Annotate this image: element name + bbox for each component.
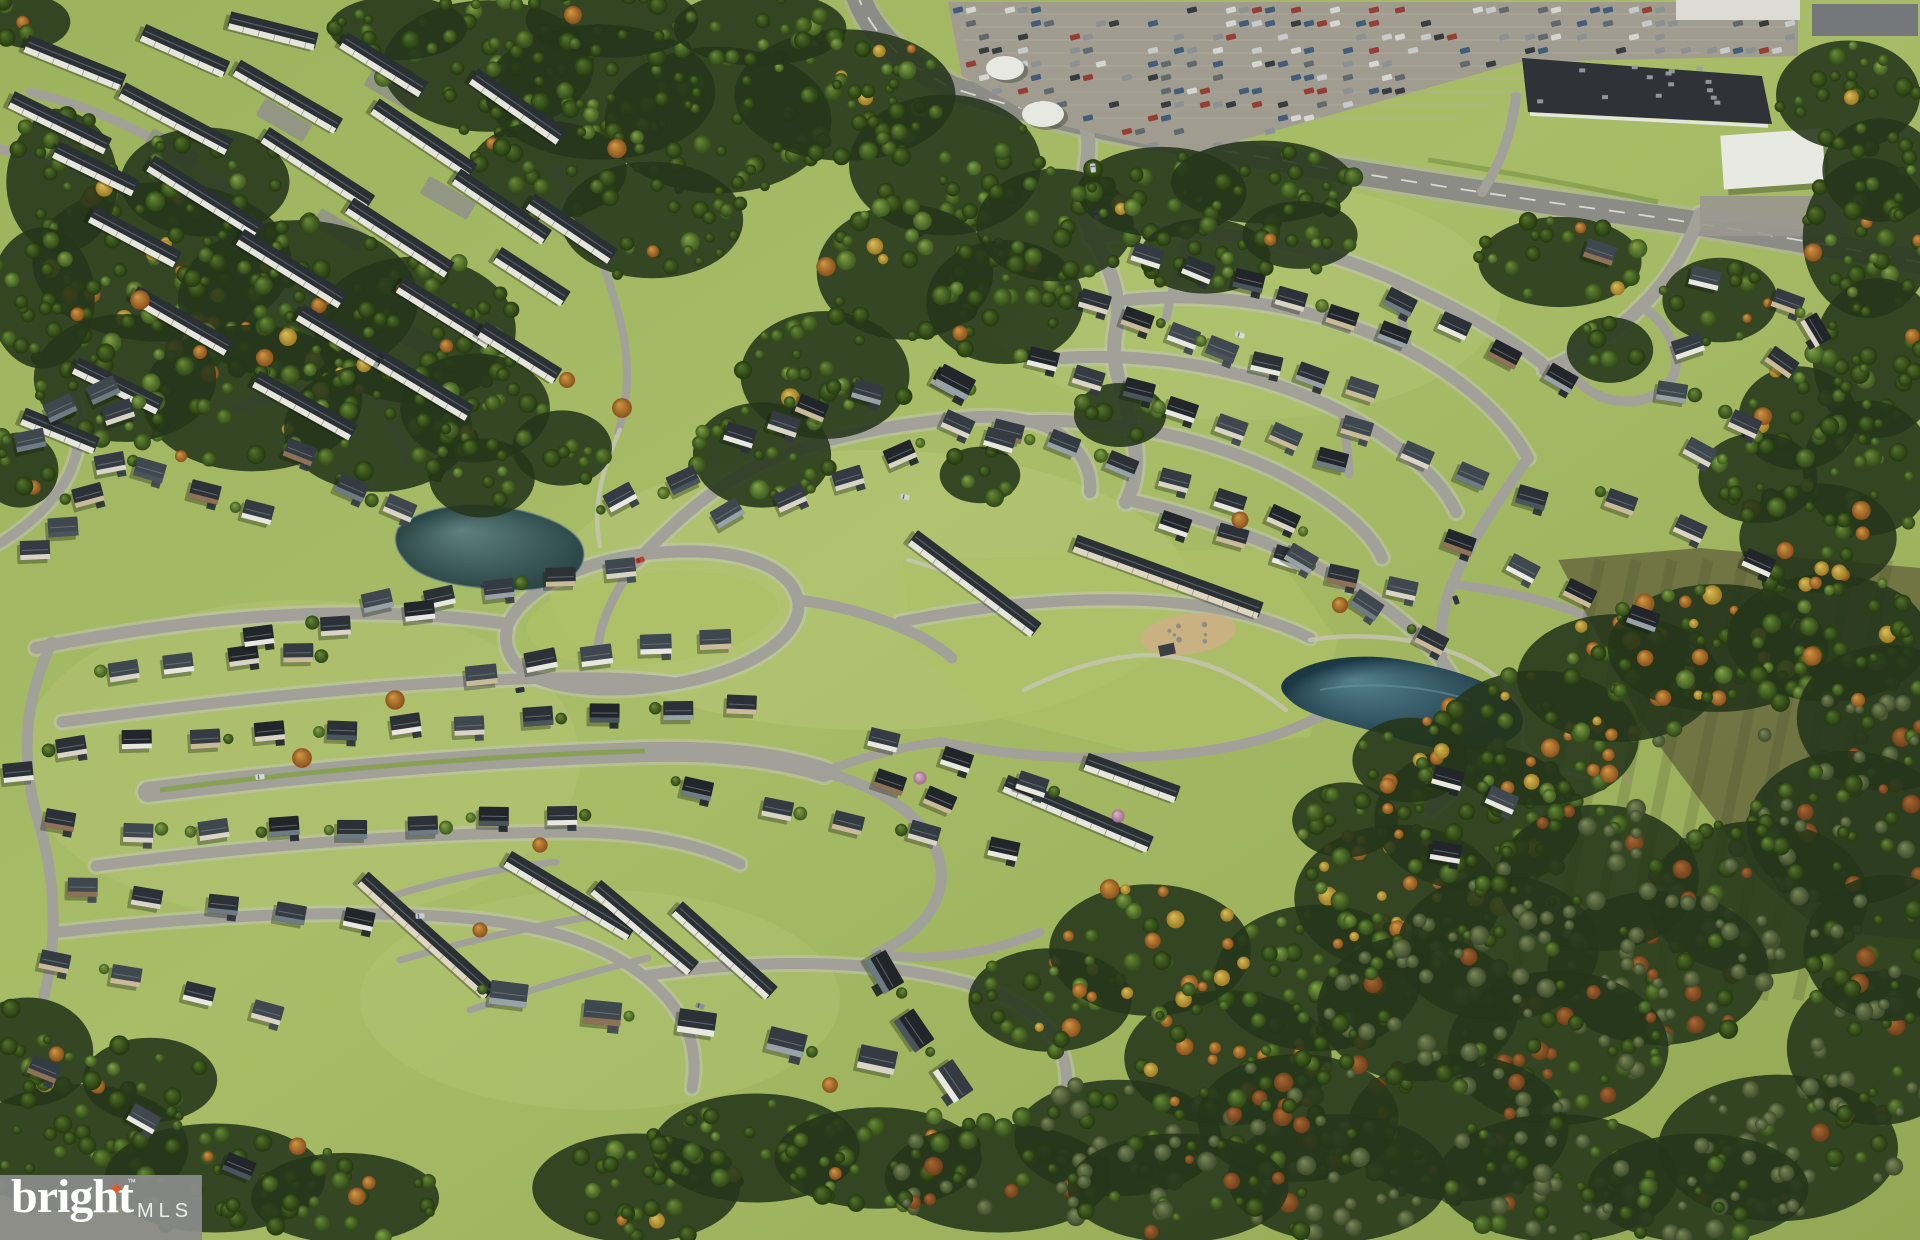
forest-tree bbox=[1084, 955, 1095, 966]
forest-tree bbox=[1890, 980, 1900, 990]
autumn-tree bbox=[1231, 511, 1248, 528]
forest-tree bbox=[650, 1136, 669, 1155]
forest-tree bbox=[1170, 1096, 1180, 1106]
car-windshield bbox=[1095, 213, 1099, 214]
forest-tree bbox=[1875, 820, 1888, 833]
forest-tree bbox=[1580, 1187, 1595, 1202]
forest-tree bbox=[740, 406, 750, 416]
forest-tree bbox=[82, 1071, 101, 1090]
forest-tree bbox=[1004, 1184, 1018, 1198]
forest-tree bbox=[1575, 222, 1586, 233]
forest-tree bbox=[100, 276, 110, 286]
forest-tree bbox=[1291, 1221, 1310, 1240]
forest-tree bbox=[785, 1144, 800, 1159]
forest-tree bbox=[1169, 1136, 1181, 1148]
forest-tree bbox=[1600, 765, 1618, 783]
forest-tree bbox=[1694, 584, 1706, 596]
forest-tree bbox=[1868, 599, 1882, 613]
forest-tree bbox=[1294, 1050, 1312, 1068]
flowering-tree bbox=[914, 772, 927, 785]
forest-tree bbox=[331, 1171, 350, 1190]
forest-tree bbox=[437, 446, 448, 457]
forest-tree bbox=[1358, 740, 1369, 751]
forest-tree bbox=[583, 446, 593, 456]
forest-tree bbox=[1207, 1054, 1217, 1064]
forest-tree bbox=[1858, 1092, 1870, 1104]
forest-tree bbox=[1042, 990, 1056, 1004]
forest-tree bbox=[1573, 722, 1590, 739]
forest-tree bbox=[1053, 1031, 1070, 1048]
forest-tree bbox=[1123, 952, 1143, 972]
forest-tree bbox=[1187, 240, 1202, 255]
forest-tree bbox=[1622, 268, 1640, 286]
forest-tree bbox=[453, 467, 463, 477]
forest-tree bbox=[890, 123, 906, 139]
forest-tree bbox=[1755, 824, 1768, 837]
yard-tree bbox=[324, 825, 335, 836]
forest-tree bbox=[1287, 165, 1303, 181]
forest-tree bbox=[175, 450, 187, 462]
forest-tree bbox=[818, 360, 835, 377]
forest-tree bbox=[1583, 1205, 1592, 1214]
forest-tree bbox=[902, 197, 920, 215]
forest-tree bbox=[594, 447, 612, 465]
forest-tree bbox=[1458, 803, 1475, 820]
forest-tree bbox=[780, 24, 790, 34]
forest-tree bbox=[198, 1132, 212, 1146]
forest-tree bbox=[1503, 259, 1520, 276]
autumn-tree bbox=[952, 325, 967, 340]
forest-tree bbox=[1850, 144, 1865, 159]
forest-tree bbox=[1713, 1202, 1724, 1213]
forest-tree bbox=[898, 61, 916, 79]
forest-tree bbox=[1805, 955, 1823, 973]
forest-tree bbox=[1783, 485, 1799, 501]
forest-tree bbox=[113, 263, 127, 277]
forest-tree bbox=[1046, 166, 1056, 176]
forest-tree bbox=[1832, 136, 1846, 150]
forest-tree bbox=[1600, 1074, 1610, 1084]
forest-tree bbox=[1261, 945, 1277, 961]
forest-tree bbox=[1172, 1213, 1181, 1222]
forest-tree bbox=[1887, 131, 1899, 143]
forest-tree bbox=[254, 276, 273, 295]
forest-tree bbox=[1324, 787, 1340, 803]
garage-wing bbox=[607, 1025, 619, 1034]
forest-tree bbox=[1022, 1149, 1036, 1163]
forest-tree bbox=[1589, 1146, 1601, 1158]
forest-tree bbox=[1209, 1042, 1221, 1054]
forest-tree bbox=[911, 121, 921, 131]
forest-tree bbox=[1870, 1135, 1888, 1153]
forest-tree bbox=[1358, 919, 1374, 935]
forest-tree bbox=[1584, 283, 1603, 302]
forest-tree bbox=[1810, 1037, 1824, 1051]
forest-tree bbox=[1321, 237, 1333, 249]
forest-tree bbox=[1630, 810, 1643, 823]
forest-tree bbox=[1811, 1123, 1829, 1141]
forest-tree bbox=[760, 1148, 772, 1160]
forest-tree bbox=[770, 329, 784, 343]
forest-tree bbox=[309, 1196, 321, 1208]
forest-tree bbox=[1382, 803, 1393, 814]
forest-tree bbox=[888, 102, 906, 120]
forest-tree bbox=[1659, 286, 1669, 296]
forest-tree bbox=[1572, 895, 1582, 905]
forest-tree bbox=[1345, 1198, 1357, 1210]
forest-tree bbox=[459, 124, 470, 135]
forest-tree bbox=[1633, 963, 1645, 975]
forest-tree bbox=[1339, 1054, 1354, 1069]
house bbox=[723, 694, 757, 718]
forest-tree bbox=[910, 1148, 921, 1159]
forest-tree bbox=[1715, 919, 1724, 928]
forest-tree bbox=[1536, 978, 1555, 997]
forest-tree bbox=[1545, 942, 1560, 957]
forest-tree bbox=[1731, 964, 1747, 980]
forest-tree bbox=[728, 230, 739, 241]
forest-tree bbox=[938, 151, 952, 165]
house bbox=[0, 761, 34, 787]
forest-tree bbox=[1077, 1203, 1094, 1220]
forest-tree bbox=[1876, 228, 1896, 248]
autumn-tree bbox=[1802, 646, 1821, 665]
forest-tree bbox=[1349, 1029, 1358, 1038]
forest-tree bbox=[929, 105, 943, 119]
forest-tree bbox=[462, 439, 479, 456]
garage-wing bbox=[661, 654, 671, 661]
forest-tree bbox=[1794, 96, 1804, 106]
forest-tree bbox=[847, 100, 857, 110]
forest-tree bbox=[813, 1185, 833, 1205]
forest-tree bbox=[1638, 1000, 1651, 1013]
forest-tree bbox=[317, 448, 335, 466]
forest-tree bbox=[1250, 1119, 1266, 1135]
forest-tree bbox=[1678, 1201, 1687, 1210]
forest-tree bbox=[1603, 825, 1615, 837]
autumn-tree bbox=[292, 748, 312, 768]
forest-tree bbox=[1712, 639, 1722, 649]
forest-tree bbox=[200, 276, 210, 286]
forest-tree bbox=[1064, 284, 1074, 294]
forest-tree bbox=[1694, 1137, 1710, 1153]
forest-tree bbox=[617, 29, 628, 40]
forest-tree bbox=[590, 44, 602, 56]
forest-tree bbox=[1650, 1030, 1661, 1041]
forest-tree bbox=[1687, 1016, 1705, 1034]
forest-tree bbox=[1490, 875, 1509, 894]
forest-tree bbox=[1742, 314, 1751, 323]
forest-tree bbox=[842, 235, 854, 247]
forest-tree bbox=[493, 138, 512, 157]
forest-tree bbox=[1047, 1163, 1057, 1173]
forest-tree bbox=[226, 1198, 241, 1213]
forest-tree bbox=[1898, 373, 1912, 387]
forest-tree bbox=[789, 1172, 798, 1181]
forest-tree bbox=[767, 1099, 777, 1109]
forest-tree bbox=[792, 349, 802, 359]
forest-tree bbox=[557, 446, 570, 459]
forest-tree bbox=[373, 312, 387, 326]
forest-tree bbox=[1087, 991, 1097, 1001]
forest-tree bbox=[1900, 626, 1912, 638]
forest-tree bbox=[1519, 212, 1538, 231]
forest-tree bbox=[1144, 1063, 1158, 1077]
forest-tree bbox=[1154, 276, 1166, 288]
forest-tree bbox=[1199, 1087, 1210, 1098]
forest-tree bbox=[1420, 829, 1431, 840]
forest-tree bbox=[1480, 703, 1495, 718]
forest-tree bbox=[1729, 274, 1742, 287]
forest-tree bbox=[1639, 882, 1657, 900]
forest-tree bbox=[1316, 1070, 1331, 1085]
forest-tree bbox=[1700, 893, 1718, 911]
forest-tree bbox=[1820, 417, 1839, 436]
forest-tree bbox=[1522, 288, 1534, 300]
forest-tree bbox=[1894, 595, 1912, 613]
forest-tree bbox=[1897, 840, 1916, 859]
forest-tree bbox=[78, 1136, 96, 1154]
house bbox=[577, 643, 614, 671]
car-windshield bbox=[903, 495, 904, 499]
forest-tree bbox=[1567, 652, 1579, 664]
forest-tree bbox=[1346, 1128, 1357, 1139]
forest-tree bbox=[1525, 1220, 1541, 1236]
forest-tree bbox=[829, 1167, 842, 1180]
forest-tree bbox=[1796, 448, 1815, 467]
forest-tree bbox=[1794, 820, 1807, 833]
forest-tree bbox=[443, 30, 457, 44]
forest-tree bbox=[1518, 911, 1537, 930]
forest-tree bbox=[1006, 254, 1026, 274]
forest-tree bbox=[1385, 1067, 1404, 1086]
house-facade bbox=[68, 891, 98, 896]
forest-tree bbox=[1666, 720, 1682, 736]
forest-tree bbox=[25, 242, 41, 258]
garage-wing bbox=[475, 735, 484, 741]
forest-tree bbox=[895, 387, 912, 404]
autumn-tree bbox=[472, 922, 487, 937]
forest-tree bbox=[1469, 925, 1489, 945]
forest-tree bbox=[760, 331, 769, 340]
forest-tree bbox=[642, 1165, 656, 1179]
forest-tree bbox=[1607, 1046, 1618, 1057]
forest-tree bbox=[227, 160, 237, 170]
forest-tree bbox=[135, 204, 146, 215]
forest-tree bbox=[53, 1145, 67, 1159]
forest-tree bbox=[164, 1138, 181, 1155]
forest-tree bbox=[1035, 1023, 1044, 1032]
forest-tree bbox=[708, 49, 724, 65]
forest-tree bbox=[1873, 915, 1883, 925]
forest-tree bbox=[1600, 1087, 1616, 1103]
forest-tree bbox=[1383, 731, 1394, 742]
forest-tree bbox=[1601, 316, 1617, 332]
forest-tree bbox=[1854, 180, 1866, 192]
forest-tree bbox=[1668, 295, 1685, 312]
forest-tree bbox=[1185, 1155, 1194, 1164]
forest-tree bbox=[1333, 1207, 1351, 1225]
forest-tree bbox=[1821, 694, 1834, 707]
forest-tree bbox=[1831, 564, 1847, 580]
forest-tree bbox=[300, 214, 320, 234]
forest-tree bbox=[788, 452, 797, 461]
forest-tree bbox=[1429, 725, 1439, 735]
forest-tree bbox=[958, 1130, 977, 1149]
forest-tree bbox=[665, 1198, 684, 1217]
garage-wing bbox=[609, 723, 618, 729]
forest-tree bbox=[1322, 181, 1331, 190]
forest-tree bbox=[1587, 764, 1600, 777]
forest-tree bbox=[981, 309, 999, 327]
forest-tree bbox=[401, 30, 420, 49]
forest-tree bbox=[1574, 761, 1586, 773]
forest-tree bbox=[1648, 858, 1664, 874]
rooftop-hvac-unit bbox=[1668, 82, 1674, 86]
house bbox=[64, 877, 97, 902]
forest-tree bbox=[384, 407, 396, 419]
forest-tree bbox=[1154, 1144, 1171, 1161]
forest-tree bbox=[1548, 819, 1562, 833]
forest-tree bbox=[1358, 1023, 1375, 1040]
car bbox=[1090, 163, 1096, 172]
forest-tree bbox=[364, 15, 373, 24]
forest-tree bbox=[691, 87, 701, 97]
forest-tree bbox=[493, 287, 507, 301]
forest-tree bbox=[106, 1062, 120, 1076]
forest-tree bbox=[733, 197, 747, 211]
forest-tree bbox=[1001, 273, 1010, 282]
rooftop-hvac-unit bbox=[1537, 99, 1543, 103]
forest-tree bbox=[1750, 800, 1762, 812]
forest-tree bbox=[1542, 1069, 1552, 1079]
forest-tree bbox=[1067, 1173, 1079, 1185]
forest-tree bbox=[1871, 702, 1887, 718]
forest-tree bbox=[1563, 805, 1575, 817]
forest-tree bbox=[1541, 738, 1560, 757]
forest-tree bbox=[1227, 1089, 1247, 1109]
forest-tree bbox=[1501, 846, 1513, 858]
forest-tree bbox=[1333, 938, 1343, 948]
forest-tree bbox=[1756, 915, 1767, 926]
forest-tree bbox=[340, 439, 350, 449]
forest-tree bbox=[183, 269, 201, 287]
forest-tree bbox=[1840, 547, 1854, 561]
forest-tree bbox=[1542, 789, 1556, 803]
forest-tree bbox=[1880, 838, 1894, 852]
forest-tree bbox=[1305, 1203, 1323, 1221]
forest-tree bbox=[1124, 199, 1141, 216]
forest-tree bbox=[1808, 793, 1819, 804]
forest-tree bbox=[1594, 219, 1611, 236]
forest-tree bbox=[1477, 1176, 1486, 1185]
forest-tree bbox=[1730, 827, 1743, 840]
forest-tree bbox=[1711, 690, 1727, 706]
car-body bbox=[415, 913, 424, 919]
forest-tree bbox=[1032, 156, 1046, 170]
forest-tree bbox=[961, 475, 975, 489]
forest-tree bbox=[518, 394, 537, 413]
water-tank bbox=[986, 56, 1024, 80]
forest-tree bbox=[1023, 209, 1041, 227]
forest-tree bbox=[1310, 262, 1322, 274]
forest-tree bbox=[1787, 864, 1805, 882]
forest-tree bbox=[372, 390, 381, 399]
forest-tree bbox=[946, 182, 960, 196]
house bbox=[44, 516, 79, 541]
playground-rock bbox=[1176, 624, 1181, 629]
garage-wing bbox=[87, 897, 96, 903]
forest-tree bbox=[43, 1035, 52, 1044]
forest-tree bbox=[253, 1133, 272, 1152]
forest-tree bbox=[1639, 1177, 1658, 1196]
forest-tree bbox=[833, 147, 851, 165]
forest-tree bbox=[1463, 930, 1472, 939]
forest-tree bbox=[1101, 1093, 1119, 1111]
forest-tree bbox=[358, 301, 376, 319]
forest-tree bbox=[1878, 999, 1889, 1010]
forest-tree bbox=[1512, 1054, 1525, 1067]
house-facade bbox=[479, 821, 509, 826]
forest-tree bbox=[1497, 712, 1513, 728]
forest-tree bbox=[22, 1080, 35, 1093]
forest-tree bbox=[1825, 234, 1837, 246]
forest-tree bbox=[492, 491, 508, 507]
forest-tree bbox=[1214, 970, 1230, 986]
forest-tree bbox=[1893, 192, 1904, 203]
forest-tree bbox=[1665, 894, 1679, 908]
forest-tree bbox=[1417, 1050, 1433, 1066]
forest-tree bbox=[1628, 239, 1647, 258]
forest-tree bbox=[986, 990, 998, 1002]
brightmls-watermark: bright ✦ ™ MLS bbox=[0, 1175, 202, 1240]
forest-tree bbox=[1067, 1196, 1078, 1207]
forest-tree bbox=[533, 178, 550, 195]
forest-tree bbox=[913, 211, 932, 230]
forest-tree bbox=[1595, 806, 1606, 817]
garage-wing bbox=[227, 915, 237, 922]
forest-tree bbox=[705, 233, 715, 243]
forest-tree bbox=[966, 1178, 977, 1189]
forest-tree bbox=[720, 203, 734, 217]
forest-tree bbox=[154, 1053, 164, 1063]
forest-tree bbox=[96, 344, 115, 363]
forest-tree bbox=[1816, 88, 1830, 102]
forest-tree bbox=[362, 1176, 376, 1190]
forest-tree bbox=[477, 301, 491, 315]
rooftop-hvac-unit bbox=[1711, 96, 1717, 100]
forest-tree bbox=[53, 1115, 72, 1134]
forest-tree bbox=[984, 487, 1004, 507]
house bbox=[586, 703, 619, 728]
forest-tree bbox=[1877, 578, 1887, 588]
rooftop-hvac-unit bbox=[1632, 65, 1638, 69]
forest-tree bbox=[1100, 879, 1120, 899]
forest-tree bbox=[256, 349, 274, 367]
forest-tree bbox=[1797, 804, 1814, 821]
forest-tree bbox=[630, 130, 644, 144]
forest-tree bbox=[1838, 1071, 1855, 1088]
watermark-star-icon: ✦ bbox=[108, 1177, 125, 1202]
forest-tree bbox=[1098, 208, 1107, 217]
forest-tree bbox=[120, 314, 135, 329]
forest-tree bbox=[426, 42, 437, 53]
forest-tree bbox=[496, 450, 507, 461]
forest-tree bbox=[185, 204, 195, 214]
forest-tree bbox=[1525, 246, 1540, 261]
forest-tree bbox=[860, 211, 869, 220]
forest-tree bbox=[262, 1176, 279, 1193]
